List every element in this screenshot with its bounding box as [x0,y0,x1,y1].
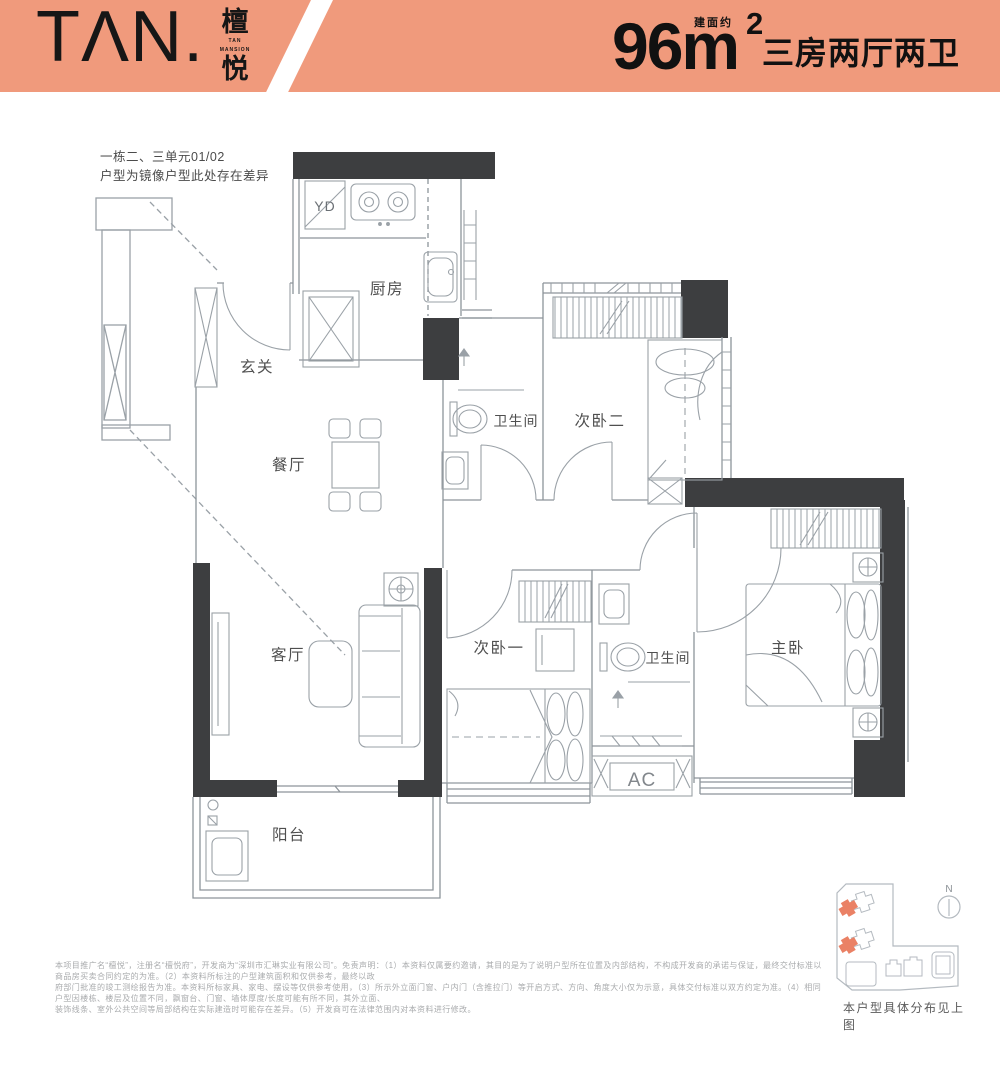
site-map-caption: 本户型具体分布见上图 [843,999,973,1033]
disclaimer-line3: 装饰线条、室外公共空间等局部结构在实际建造时可能存在差异。（5）开发商可在法律范… [55,1004,823,1015]
room-label-balcony: 阳台 [272,826,306,844]
ac-label: AC [628,770,656,791]
nightstand-icon-top [853,553,883,582]
fridge-box-icon [303,291,359,367]
compass-north-label: N [945,884,952,895]
floor-plan: 厨房 玄关 餐厅 卫生间 次卧二 客厅 次卧一 卫生间 主卧 阳台 YD AC [0,0,1000,1065]
room-label-bed2: 次卧二 [574,412,625,430]
room-label-bath1: 卫生间 [494,413,539,429]
side-table-lamp-icon [384,573,418,606]
room-label-kitchen: 厨房 [370,280,404,298]
compass-icon: N [938,884,960,918]
bed-icon-bed1 [447,689,590,783]
stove-icon [351,184,415,225]
washer-icon [206,800,248,881]
wardrobe-icon-master [771,509,881,548]
mirror-callout-shape [96,198,345,655]
kitchen-sink-icon [424,252,457,302]
disclaimer-line1: 本项目推广名“檀悦”，注册名“檀悦府”，开发商为“深圳市汇琳实业有限公司”。免责… [55,960,823,982]
wardrobe-icon-bed2 [553,297,682,338]
duct-label: YD [314,198,335,214]
site-block-right [932,952,954,978]
bed-icon-master [746,584,881,706]
disclaimer: 本项目推广名“檀悦”，注册名“檀悦府”，开发商为“深圳市汇琳实业有限公司”。免责… [55,960,823,1015]
bed-icon-bed2 [648,340,722,480]
site-block-square [846,962,876,986]
basin-icon-bath2 [599,584,629,624]
shower-icon-bath1 [459,349,469,366]
tv-stand-icon [212,613,229,735]
room-label-bath2: 卫生间 [646,650,691,666]
shower-icon-bath2 [613,691,623,708]
room-label-dining: 餐厅 [272,456,306,474]
bath2-shower-band [600,736,682,746]
toilet-icon-bath1 [450,402,487,436]
room-label-hall: 玄关 [240,358,274,376]
coffee-table-icon [309,641,352,707]
nightstand-icon-bottom [853,708,883,737]
site-building-1 [836,890,875,920]
sofa-icon [359,605,420,747]
room-label-bed1: 次卧一 [473,639,524,657]
bed2-corner-box [648,478,682,504]
site-map: N [836,884,960,990]
room-label-master: 主卧 [771,639,805,657]
room-label-living: 客厅 [271,646,305,664]
furniture [206,181,883,881]
desk-icon-bed1 [536,629,574,671]
basin-icon-bath1 [442,452,468,489]
site-blocks-mid [886,957,922,976]
site-building-2 [836,927,875,957]
disclaimer-line2: 府部门批准的竣工测绘报告为准。本资料所标家具、家电、摆设等仅供参考使用，（3）所… [55,982,823,1004]
page: TΛN. 檀 TAN MANSION 悦 96m 建面约 2 三房两厅两卫 一栋… [0,0,1000,1065]
dining-table-icon [329,419,381,511]
toilet-icon-bath2 [600,643,645,671]
wardrobe-icon-bed1 [519,581,591,622]
